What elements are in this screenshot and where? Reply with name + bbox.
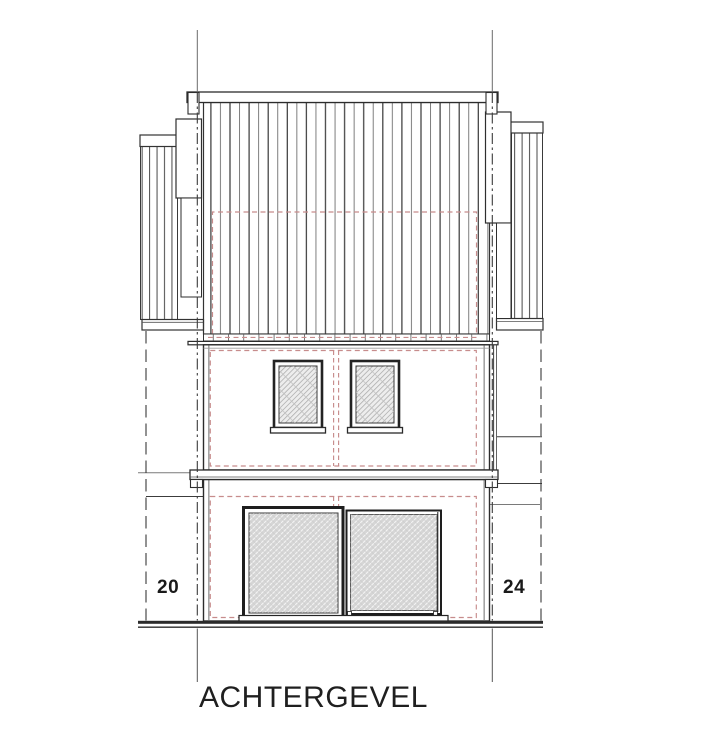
window-left — [271, 361, 326, 433]
house-number-right: 24 — [503, 578, 525, 597]
drawing-title: ACHTERGEVEL — [199, 683, 428, 713]
sliding-door-sill — [239, 616, 448, 622]
roof-cladding — [204, 103, 490, 335]
elevation-linework — [0, 0, 703, 736]
sliding-door — [239, 508, 448, 622]
window-left-sill — [271, 428, 326, 434]
window-right-sill — [348, 428, 403, 434]
rear-elevation-drawing: 20 24 ACHTERGEVEL — [0, 0, 703, 736]
roof-fascia — [188, 334, 498, 345]
window-right — [348, 361, 403, 433]
house-number-left: 20 — [157, 578, 179, 597]
